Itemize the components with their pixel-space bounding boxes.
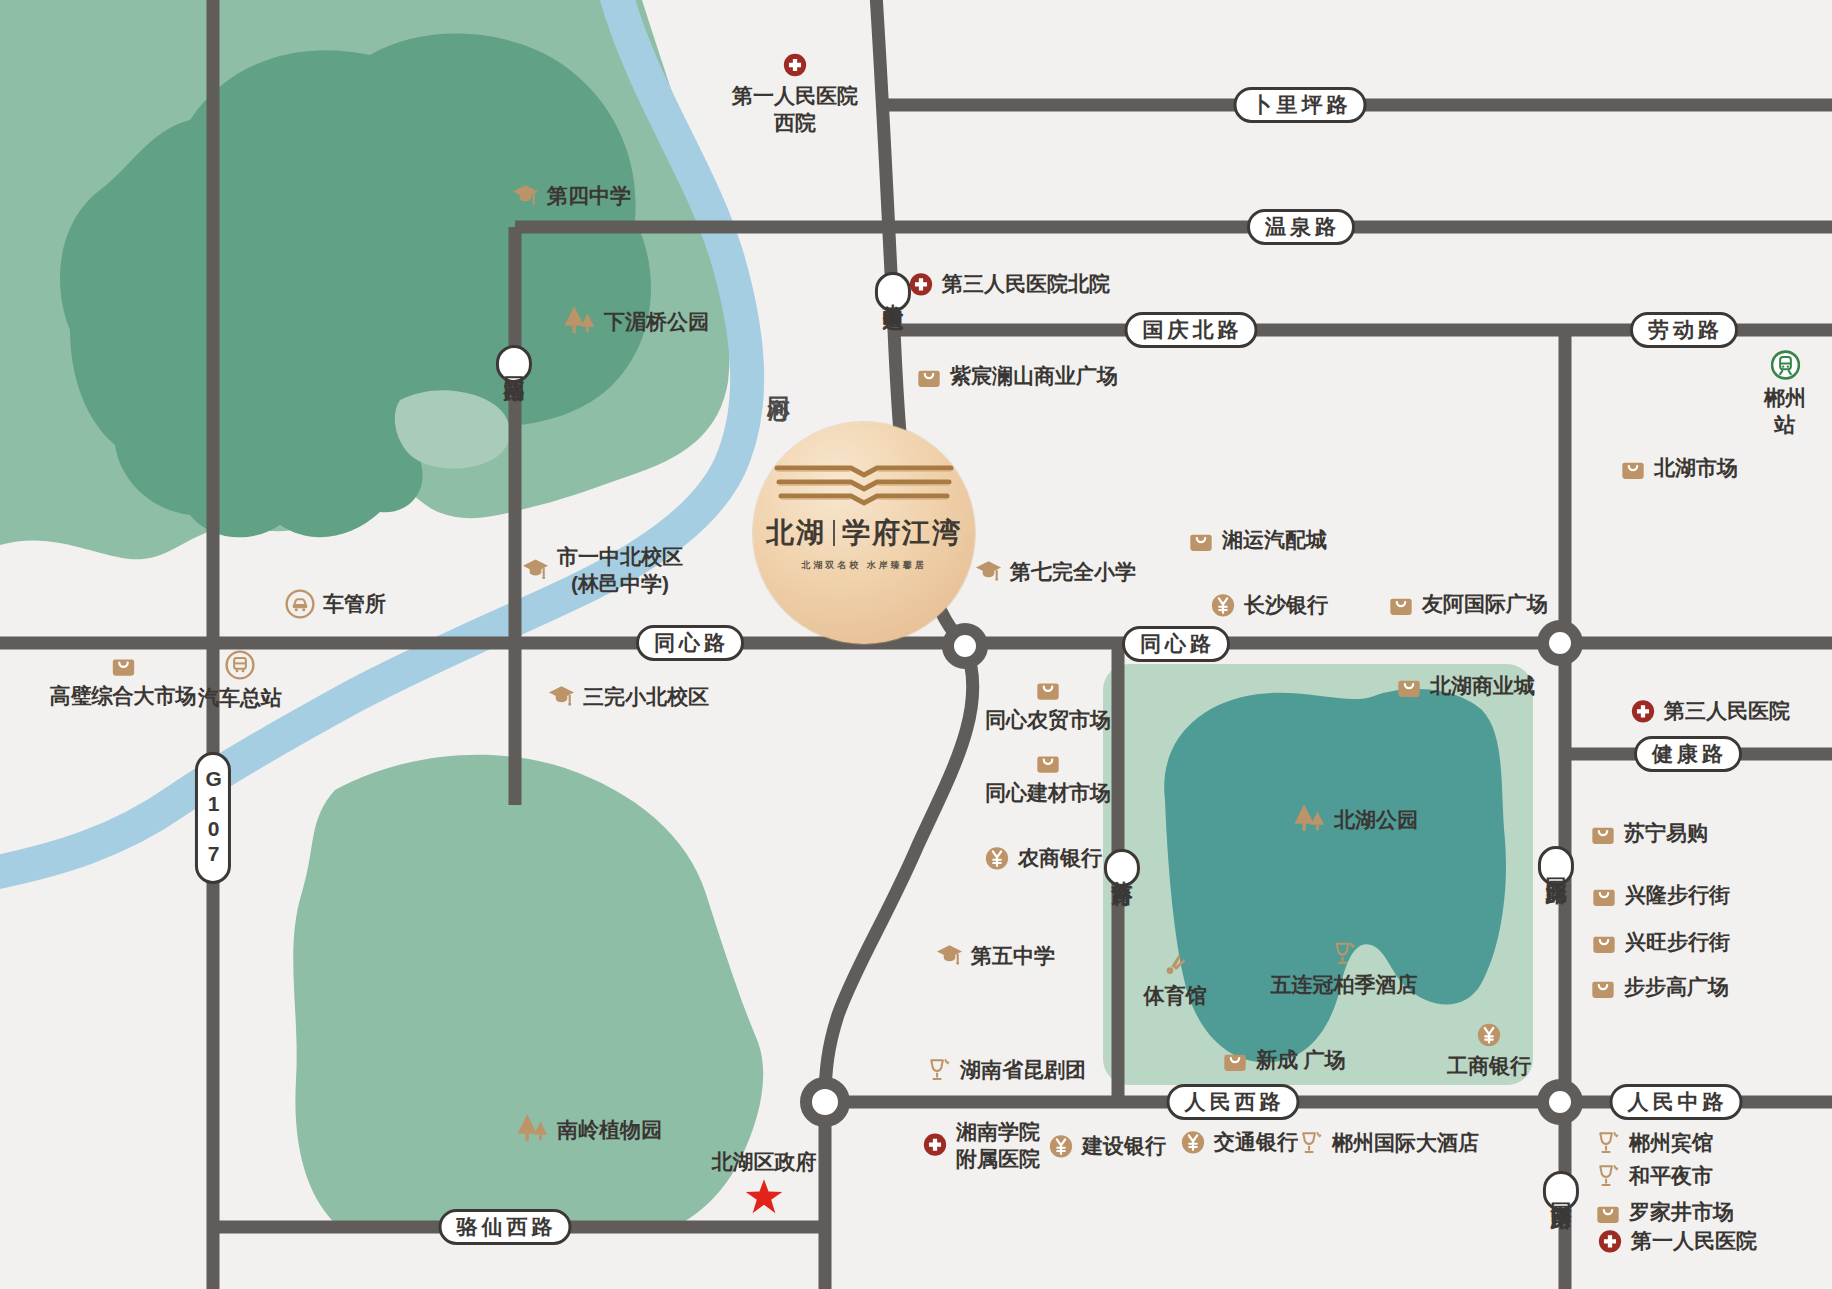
- logo-tagline: 北湖双名校 水岸臻馨居: [801, 559, 927, 572]
- logo-book-icon: [771, 460, 957, 512]
- logo-divider: [833, 520, 835, 546]
- logo-title: 北湖 学府江湾: [766, 514, 962, 552]
- project-logo: 北湖 学府江湾 北湖双名校 水岸臻馨居: [753, 422, 975, 644]
- logo-name-part2: 学府江湾: [842, 514, 962, 552]
- logo-name-part1: 北湖: [766, 514, 826, 552]
- real-estate-location-map: 北湖 学府江湾 北湖双名校 水岸臻馨居 卜里坪路温泉路国庆北路劳动路同心路同心路…: [0, 0, 1832, 1289]
- map-canvas: [0, 0, 1832, 1289]
